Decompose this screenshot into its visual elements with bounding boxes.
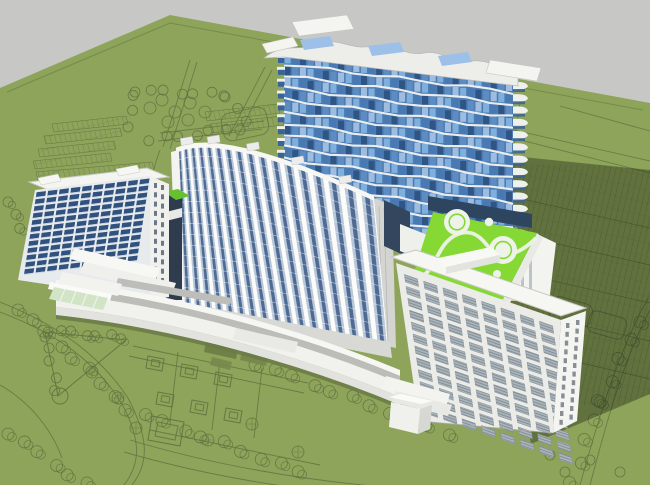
tower-balcony-left — [277, 126, 285, 129]
tower-balcony-right — [513, 89, 525, 92]
tower-balcony-right — [513, 163, 525, 166]
tower-balcony-right — [513, 126, 525, 129]
tower-balcony-right — [513, 200, 525, 203]
tower-balcony-left — [277, 102, 285, 105]
tower-balcony-right — [513, 175, 525, 178]
tower-balcony-left — [277, 79, 285, 82]
architectural-render-canvas — [0, 0, 650, 485]
tower-balcony-left — [277, 138, 285, 141]
render-stage — [0, 0, 650, 485]
tower-balcony-right — [513, 187, 525, 190]
tower-balcony-right — [513, 101, 525, 104]
tower-balcony-right — [513, 114, 525, 117]
tower-balcony-right — [513, 138, 525, 141]
small-pad — [485, 218, 493, 226]
tower-balcony-left — [277, 67, 285, 70]
tower-balcony-right — [513, 150, 525, 153]
tower-balcony-left — [277, 91, 285, 94]
tower-balcony-left — [277, 114, 285, 117]
tower-balcony-left — [277, 150, 285, 153]
